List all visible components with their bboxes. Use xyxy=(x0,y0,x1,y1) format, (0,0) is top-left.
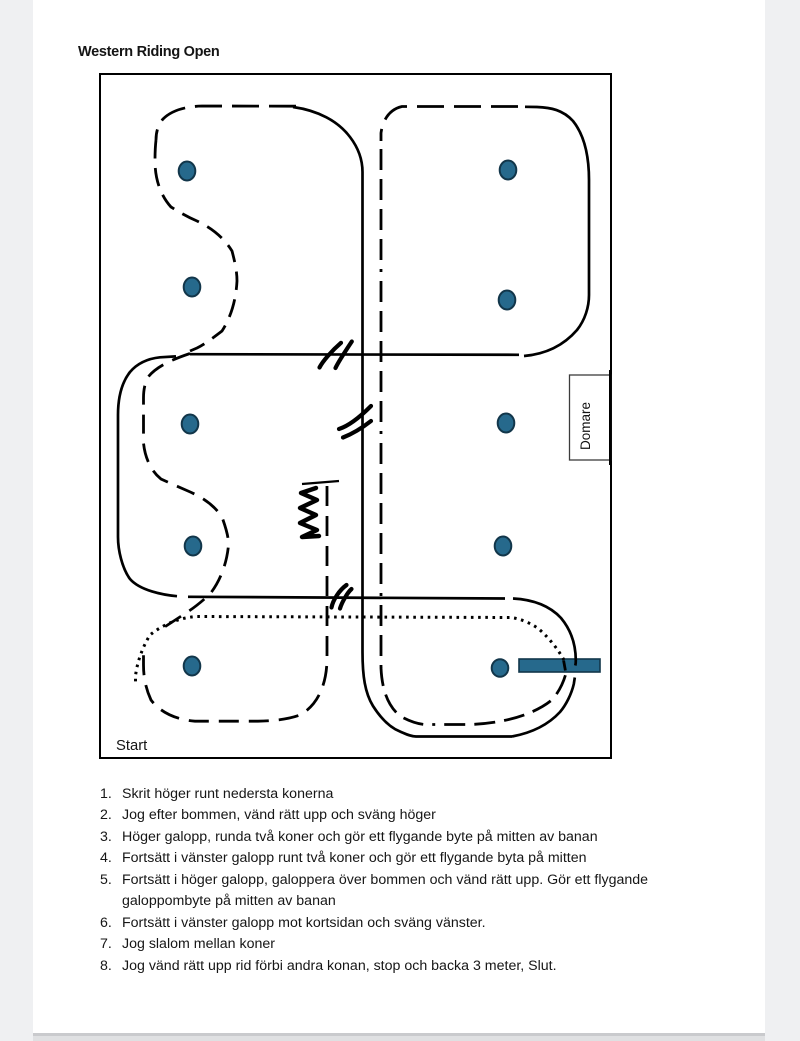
svg-text:Domare: Domare xyxy=(578,402,593,450)
svg-text:Start: Start xyxy=(116,738,147,754)
